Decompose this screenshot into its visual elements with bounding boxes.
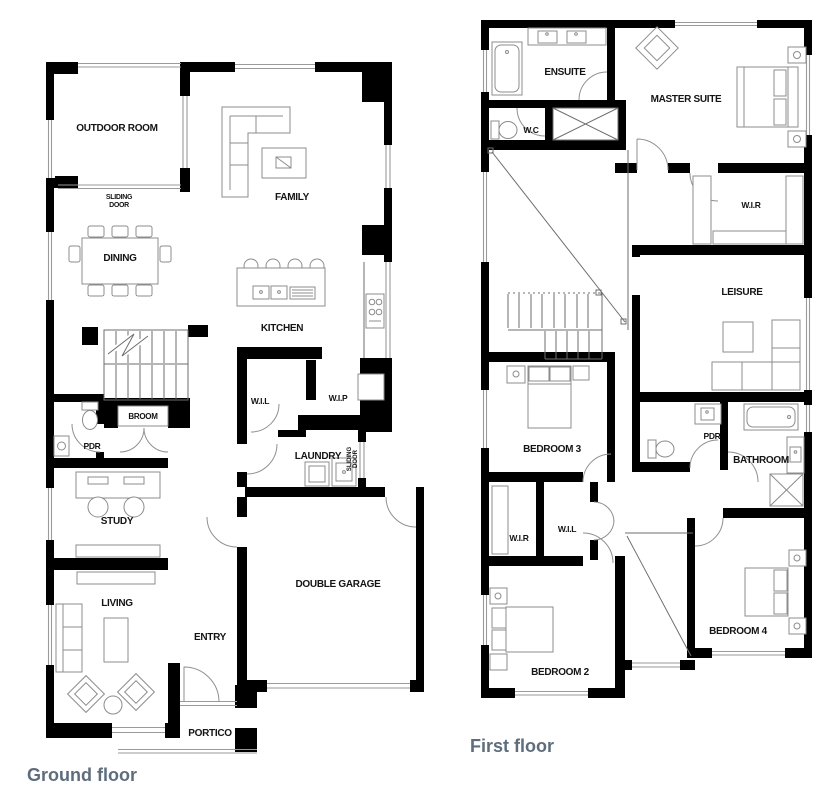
living-coffee-table-icon	[104, 618, 128, 662]
room-label-outdoor-room: OUTDOOR ROOM	[76, 123, 157, 134]
room-label-entry: ENTRY	[194, 632, 227, 643]
first-floor-plan: ENSUITE W.C MASTER SUITE W.I.R LEISURE B…	[480, 19, 813, 698]
family-sofa-icon	[222, 107, 290, 197]
pdr-sink-icon	[54, 436, 69, 456]
living-armchair-icon	[68, 676, 105, 713]
room-label-family: FAMILY	[275, 192, 310, 203]
room-label-wip: W.I.P	[329, 393, 348, 403]
kitchen-island-icon	[237, 259, 325, 306]
room-label-wir: W.I.R	[509, 533, 528, 543]
sliding-door-label: DOOR	[109, 202, 129, 209]
wir-robes-icon	[693, 176, 803, 244]
ground-floor-plan: OUTDOOR ROOM SLIDING DOOR FAMILY DINING …	[45, 62, 424, 753]
wil-door-arcs	[594, 502, 614, 540]
kitchen-bench-cooktop-icon	[364, 262, 384, 358]
room-label-master-suite: MASTER SUITE	[651, 94, 722, 105]
sliding-door-label: SLIDING	[106, 194, 133, 201]
room-label-wil: W.I.L	[251, 396, 269, 406]
garage-entry-door-arc	[207, 517, 237, 547]
pdr-first-toilet-icon	[648, 440, 674, 458]
room-label-pdr: PDR	[83, 441, 100, 451]
fridge-icon	[358, 374, 384, 400]
ground-stairs	[104, 330, 188, 400]
void-diagonal	[625, 533, 693, 656]
living-cabinet-icon	[77, 572, 155, 584]
bedroom2-bed-icon	[490, 588, 553, 670]
wc-toilet-icon	[491, 121, 517, 139]
room-label-ensuite: ENSUITE	[544, 67, 586, 78]
leisure-coffee-table-icon	[723, 322, 753, 352]
room-label-kitchen: KITCHEN	[261, 323, 303, 334]
living-armchair-icon	[118, 674, 155, 711]
master-bed-icon	[737, 47, 806, 147]
pdr-first-vanity-icon	[695, 404, 721, 424]
room-label-pdr-first: PDR	[703, 431, 720, 441]
bedroom3-bed-icon	[507, 366, 589, 428]
room-label-bedroom2: BEDROOM 2	[531, 667, 590, 678]
master-door-arc	[637, 139, 668, 170]
wir2-robe-icon	[492, 486, 508, 554]
room-label-bathroom: BATHROOM	[733, 455, 789, 466]
laundry-door-arc	[247, 444, 277, 474]
bathtub-icon	[492, 42, 522, 95]
room-label-leisure: LEISURE	[721, 287, 763, 298]
room-label-broom: BROOM	[128, 412, 158, 421]
study-credenza-icon	[76, 545, 160, 557]
floor-plan-page: OUTDOOR ROOM SLIDING DOOR FAMILY DINING …	[0, 0, 824, 786]
room-label-dining: DINING	[103, 253, 137, 264]
ensuite-vanity-icon	[528, 28, 606, 45]
shower-icon	[770, 474, 803, 506]
ground-floor-title: Ground floor	[27, 765, 137, 785]
room-label-wir-master: W.I.R	[741, 200, 760, 210]
room-label-wil-first: W.I.L	[558, 524, 576, 534]
living-side-table-icon	[104, 696, 122, 714]
living-sofa-icon	[56, 604, 82, 672]
room-label-double-garage: DOUBLE GARAGE	[296, 579, 382, 590]
room-label-wc: W.C	[523, 125, 538, 135]
room-label-living: LIVING	[101, 598, 133, 609]
toilet-icon	[82, 402, 98, 430]
bathroom-tub-icon	[744, 404, 798, 430]
study-desk-icon	[76, 472, 160, 517]
washer-icon	[305, 462, 329, 486]
garage-rear-door-arc	[386, 497, 416, 527]
family-rug-tv-icon	[262, 148, 306, 178]
broom-door-arcs	[120, 428, 168, 452]
pdr-first-door-arc	[690, 440, 718, 468]
wil-door-arc	[251, 404, 279, 432]
master-chair-icon	[636, 27, 678, 69]
bathroom-vanity-icon	[787, 437, 804, 473]
room-label-study: STUDY	[101, 516, 134, 527]
room-label-bedroom3: BEDROOM 3	[523, 444, 582, 455]
linen-closet-icon	[553, 108, 618, 140]
room-label-portico: PORTICO	[188, 728, 232, 739]
bedroom4-door-arc	[695, 518, 723, 546]
room-label-bedroom4: BEDROOM 4	[709, 626, 768, 637]
floor-plan-drawing: OUTDOOR ROOM SLIDING DOOR FAMILY DINING …	[0, 0, 824, 786]
sliding-door-side-label: DOOR	[353, 449, 359, 468]
bedroom4-bed-icon	[745, 550, 806, 634]
room-label-laundry: LAUNDRY	[295, 451, 342, 462]
first-stair-void	[488, 148, 628, 359]
first-floor-title: First floor	[470, 736, 554, 756]
bedroom3-door-arc	[583, 454, 611, 482]
front-door-arc	[184, 667, 219, 702]
